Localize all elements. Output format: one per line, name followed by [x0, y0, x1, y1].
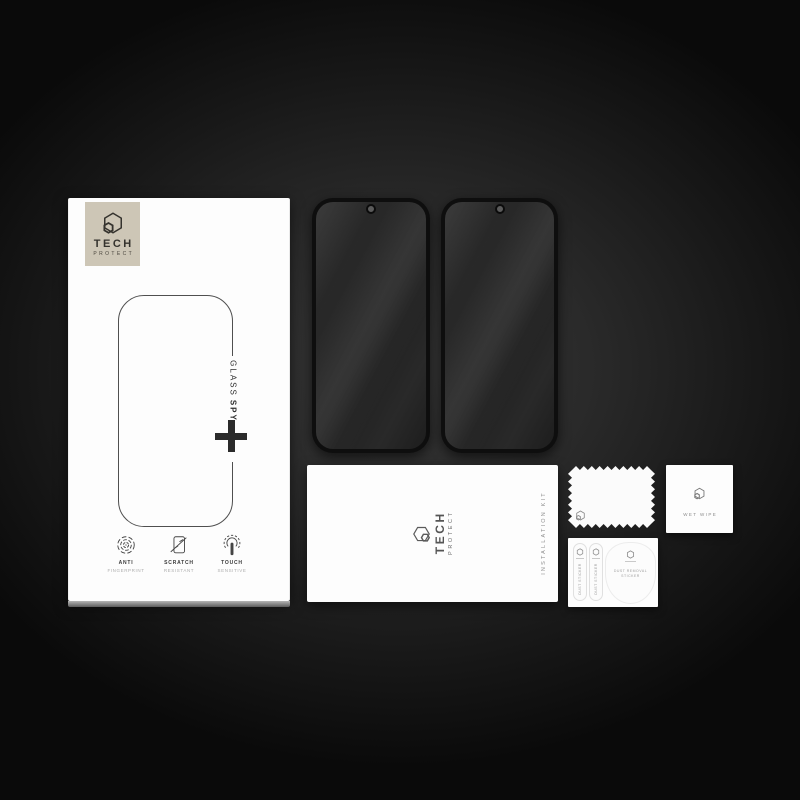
phone-outline-drawing [118, 295, 233, 527]
microfiber-cloth [568, 466, 655, 528]
glass-reflection [316, 202, 426, 449]
rotated-brand-logo: TECH PROTECT [412, 510, 454, 557]
brand-subname: PROTECT [91, 251, 134, 257]
hexagon-logo-icon [576, 548, 584, 556]
feature-icon-row: ANTI FINGERPRINT SCRATCH RESISTANT [102, 534, 256, 573]
dust-removal-sticker: DUST REMOVAL STICKER [605, 542, 656, 604]
feature-label: TOUCH [221, 560, 243, 566]
blob-label-line2: STICKER [621, 574, 640, 578]
product-name-vertical: GLASSSPY [229, 360, 238, 422]
hexagon-logo-icon [592, 548, 600, 556]
glass-reflection [445, 202, 554, 449]
brand-logo-plate: TECH PROTECT [85, 202, 140, 266]
retail-box: TECH PROTECT GLASSSPY ANTI FINGERPRINT [68, 198, 290, 601]
feature-sublabel: FINGERPRINT [107, 568, 144, 573]
hexagon-logo-icon [575, 510, 586, 521]
hexagon-logo-icon [626, 550, 635, 559]
divider [592, 558, 600, 559]
feature-scratch-resistant: SCRATCH RESISTANT [155, 534, 203, 573]
dust-sticker-strip: DUST STICKER [573, 543, 587, 601]
screen-protector-2 [441, 198, 558, 453]
divider [625, 561, 636, 562]
feature-touch-sensitive: TOUCH SENSITIVE [208, 534, 256, 573]
hexagon-logo-icon [693, 487, 706, 500]
scratch-icon [168, 534, 190, 556]
privacy-glass [445, 202, 554, 449]
strip-label: DUST STICKER [578, 563, 582, 595]
strip-label: DUST STICKER [594, 563, 598, 595]
wet-wipe-label: WET WIPE [682, 512, 717, 517]
box-side-edge [68, 601, 290, 607]
screen-protector-1 [312, 198, 430, 453]
glass-label: GLASS [229, 360, 238, 397]
spy-label: SPY [229, 400, 238, 422]
divider [576, 558, 584, 559]
brand-name: TECH [433, 511, 447, 557]
feature-label: ANTI [119, 560, 134, 566]
feature-anti-fingerprint: ANTI FINGERPRINT [102, 534, 150, 573]
hexagon-logo-icon [101, 211, 125, 235]
installation-kit-card: TECH PROTECT INSTALLATION KIT [307, 465, 558, 602]
camera-hole [366, 204, 376, 214]
feature-sublabel: RESISTANT [164, 568, 194, 573]
product-photo: TECH PROTECT GLASSSPY ANTI FINGERPRINT [0, 0, 800, 800]
brand-name: TECH [91, 238, 133, 250]
plus-icon [215, 420, 247, 452]
hexagon-logo-icon [412, 524, 431, 543]
touch-icon [221, 534, 243, 556]
sticker-sheet: DUST STICKER DUST STICKER DUST REMOVAL S… [568, 538, 658, 607]
camera-hole [495, 204, 505, 214]
privacy-glass [316, 202, 426, 449]
wet-wipe-packet: WET WIPE [666, 465, 733, 533]
feature-sublabel: SENSITIVE [218, 568, 247, 573]
blob-label-line1: DUST REMOVAL [614, 569, 647, 573]
brand-subname: PROTECT [448, 510, 454, 557]
fingerprint-icon [115, 534, 137, 556]
feature-label: SCRATCH [164, 560, 194, 566]
installation-kit-label: INSTALLATION KIT [541, 491, 547, 575]
dust-sticker-strip: DUST STICKER [589, 543, 603, 601]
